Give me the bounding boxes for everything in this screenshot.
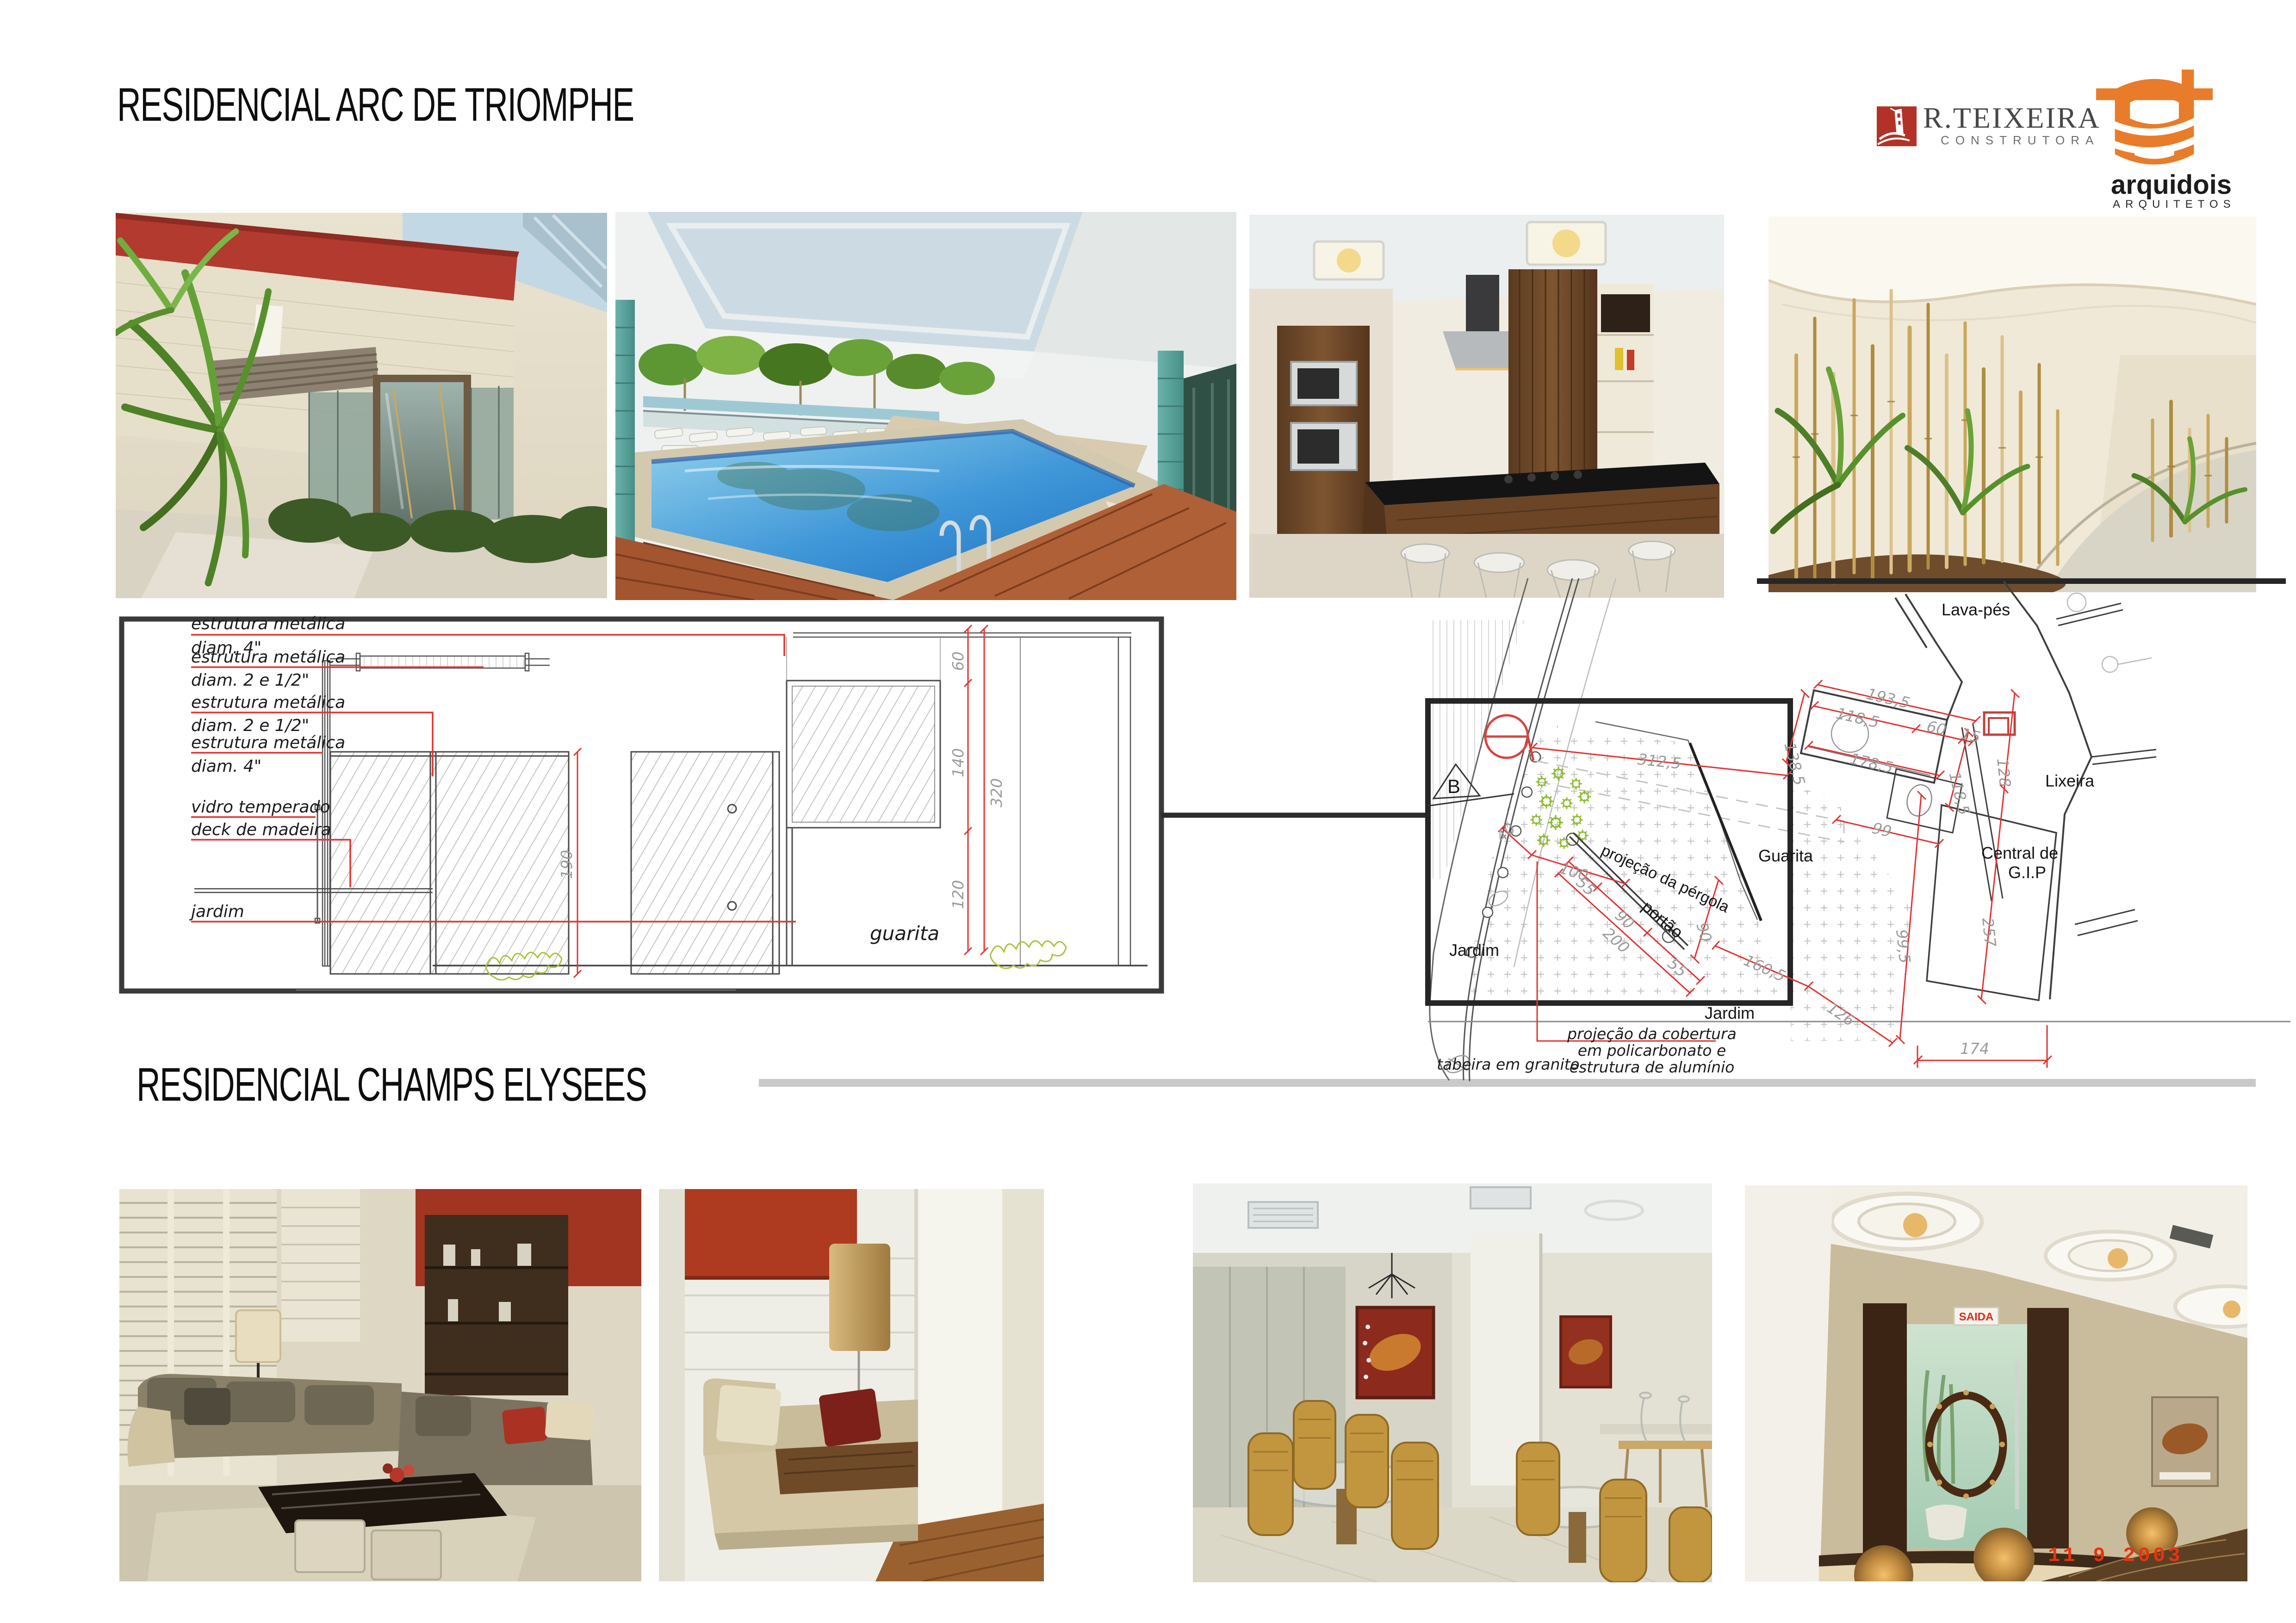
label-lixeira: Lixeira [2045, 771, 2095, 790]
section-drawing-guarita: 190 60 140 120 320 estrutura metálica di… [122, 614, 1161, 991]
svg-text:diam. 2 e 1/2": diam. 2 e 1/2" [191, 716, 309, 735]
dim-1185b: 118,5 [1945, 770, 1973, 817]
svg-text:estrutura metálica: estrutura metálica [191, 614, 345, 633]
svg-text:diam. 2 e 1/2": diam. 2 e 1/2" [191, 671, 309, 690]
label-guarita: Guarita [1758, 846, 1813, 865]
dim-120: 120 [949, 880, 967, 909]
photo-date-stamp: 11 9 2003 [2048, 1544, 2183, 1567]
dim-128: 128 [1993, 757, 2014, 788]
dim-995: 99,5 [1893, 929, 1914, 964]
photo-lobby-entrance: SAIDA 11 9 2003 [1745, 1185, 2247, 1581]
dim-15: 15 [1959, 725, 1982, 746]
portfolio-board: RESIDENCIAL ARC DE TRIOMPHE RESIDENCIAL … [0, 0, 2296, 1623]
dim-1385: 138,5 [1781, 741, 1809, 787]
plan-marker-b: B [1447, 775, 1460, 797]
photo-kitchen [1249, 215, 1724, 598]
photo-dining-area [1193, 1183, 1712, 1582]
label-jardim-left: Jardim [1449, 941, 1499, 960]
label-jardim-right: Jardim [1705, 1004, 1755, 1022]
photo-chaise-lounge [659, 1189, 1044, 1581]
note-cobertura-2: em policarbonato e [1578, 1041, 1726, 1059]
rteixeira-logo-icon [1877, 106, 1917, 146]
svg-text:deck de madeira: deck de madeira [191, 820, 331, 839]
note-cobertura-3: estrutura de alumínio [1570, 1058, 1735, 1076]
note-tabeira: tabeira em granito [1437, 1055, 1580, 1073]
svg-text:estrutura metálica: estrutura metálica [191, 693, 345, 712]
section-caption: guarita [870, 922, 939, 945]
dim-140: 140 [949, 748, 967, 777]
arquidois-logo: arquidois ARQUITETOS [2095, 63, 2262, 206]
label-central-1: Central de [1981, 843, 2058, 862]
arquidois-name: arquidois [2111, 169, 2232, 200]
arquidois-logo-icon [2096, 63, 2213, 172]
rteixeira-subtitle: CONSTRUTORA [1941, 133, 2099, 148]
photo-living-room [119, 1189, 641, 1581]
svg-text:estrutura metálica: estrutura metálica [191, 733, 345, 752]
plan-red-symbol [1485, 715, 1533, 761]
page-title-arc-de-triomphe: RESIDENCIAL ARC DE TRIOMPHE [117, 78, 855, 132]
dim-320: 320 [987, 778, 1005, 807]
note-cobertura-1: projeção da cobertura [1567, 1025, 1737, 1043]
dim-1785: 178,5 [1848, 750, 1895, 777]
dim-60: 60 [949, 651, 967, 671]
svg-text:estrutura metálica: estrutura metálica [191, 648, 345, 667]
svg-text:vidro temperado: vidro temperado [191, 798, 330, 817]
page-title-text: RESIDENCIAL ARC DE TRIOMPHE [117, 78, 634, 132]
dim-174: 174 [1960, 1040, 1989, 1058]
saida-sign: SAIDA [1959, 1311, 1994, 1323]
technical-drawings: 190 60 140 120 320 estrutura metálica di… [0, 574, 2296, 1120]
svg-text:diam. 4": diam. 4" [191, 757, 261, 776]
arquidois-subtitle: ARQUITETOS [2113, 198, 2236, 211]
dim-99: 99 [1870, 819, 1893, 841]
dim-257: 257 [1979, 917, 1999, 948]
photo-indoor-pool [615, 212, 1236, 600]
dim-1185a: 118,5 [1834, 704, 1881, 731]
photo-entrance-gatehouse [116, 213, 607, 598]
photo-bamboo-garden [1769, 217, 2256, 592]
dim-190: 190 [558, 850, 576, 879]
rteixeira-logo: R.TEIXEIRA CONSTRUTORA [1877, 105, 2094, 155]
label-lavapes: Lava-pés [1942, 600, 2010, 619]
svg-text:jardim: jardim [189, 902, 244, 921]
label-central-2: G.I.P [2008, 863, 2046, 882]
rteixeira-name: R.TEIXEIRA [1923, 101, 2101, 135]
site-plan: B [1427, 578, 2290, 1081]
dim-60b: 60 [1925, 717, 1948, 739]
dim-1935: 193,5 [1865, 685, 1911, 712]
